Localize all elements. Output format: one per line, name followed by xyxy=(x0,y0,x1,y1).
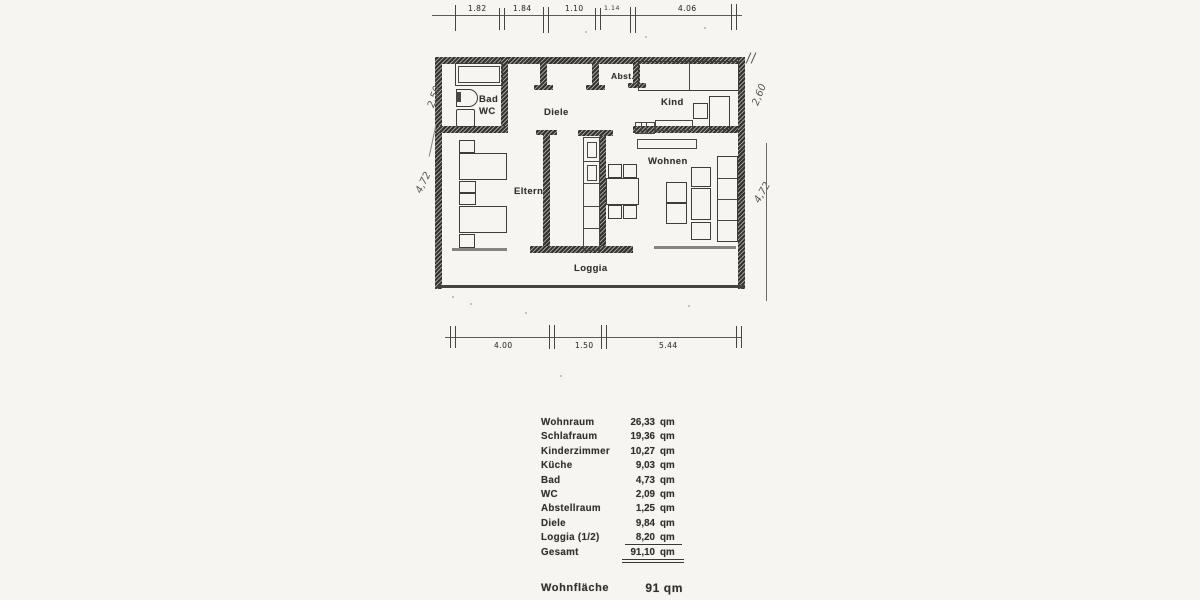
wall-cap xyxy=(536,130,557,135)
kitchen-stove xyxy=(587,165,597,181)
wall-eltern-diele xyxy=(543,132,550,253)
table-row-unit: qm xyxy=(660,519,675,529)
dim-tick xyxy=(635,7,636,33)
scanned-floorplan-sheet: 1.82 1.84 1.10 1.14 4.06 xyxy=(0,0,1200,600)
table-row-label: Bad xyxy=(541,476,560,486)
scan-speck xyxy=(525,312,527,314)
dim-tick xyxy=(736,4,737,30)
coffee-table xyxy=(691,222,711,240)
dim-tick xyxy=(601,325,602,349)
wall-loggia-middle xyxy=(530,246,633,253)
dim-tick xyxy=(455,5,456,31)
kitchen-counter xyxy=(583,137,600,251)
dim-tick xyxy=(543,7,544,33)
shelf xyxy=(655,120,693,131)
wardrobe xyxy=(638,61,739,91)
wall-cap xyxy=(578,130,613,136)
dim-label: 1.14 xyxy=(604,6,620,12)
loggia-parapet xyxy=(437,285,744,288)
table-row-unit: qm xyxy=(660,447,675,457)
room-label-wohnen: Wohnen xyxy=(648,156,688,167)
table-row-unit: qm xyxy=(660,548,675,558)
table-row-value: 8,20 xyxy=(583,533,655,543)
chair xyxy=(608,205,622,219)
scan-speck xyxy=(470,303,472,305)
dim-tick xyxy=(504,8,505,30)
scan-speck xyxy=(688,305,690,307)
table-row-unit: qm xyxy=(660,490,675,500)
total-rule-2 xyxy=(622,562,684,563)
chair xyxy=(623,205,637,219)
shelf-small xyxy=(635,122,655,134)
table-row-value: 9,03 xyxy=(583,461,655,471)
armchair xyxy=(666,182,687,203)
table-row-value: 26,33 xyxy=(583,418,655,428)
table-row-value: 1,25 xyxy=(583,504,655,514)
counter-divider xyxy=(584,161,599,162)
counter-divider xyxy=(584,206,599,207)
table-row-label: Küche xyxy=(541,461,572,471)
washbasin-tap xyxy=(456,92,461,102)
dim-tick xyxy=(630,7,631,33)
scan-speck xyxy=(585,31,587,33)
sofa-divider xyxy=(718,220,737,221)
coffee-table xyxy=(691,167,711,187)
summary-value: 91 qm xyxy=(597,582,683,594)
nightstand xyxy=(459,234,475,248)
scan-speck xyxy=(645,36,647,38)
table-row-value: 4,73 xyxy=(583,476,655,486)
dining-table xyxy=(606,178,639,205)
subtotal-rule xyxy=(625,544,682,545)
nightstand xyxy=(459,192,476,205)
table-row-unit: qm xyxy=(660,533,675,543)
wall-right xyxy=(738,57,745,289)
dim-label: 4.00 xyxy=(494,342,513,350)
room-label-diele: Diele xyxy=(544,107,569,118)
sofa-divider xyxy=(718,178,737,179)
window-wohnen-loggia xyxy=(654,246,736,249)
dim-label: 4.06 xyxy=(678,5,697,13)
table-row-label: Gesamt xyxy=(541,548,579,558)
sofa xyxy=(717,156,738,242)
handwritten-dim-right-upper: 2,60 xyxy=(751,83,769,107)
table-row-label: Diele xyxy=(541,519,566,529)
window-eltern-loggia xyxy=(452,248,507,251)
bathtub-inner xyxy=(458,66,500,83)
shelf-divider xyxy=(641,123,642,133)
bathtub xyxy=(455,63,503,86)
table-row-unit: qm xyxy=(660,476,675,486)
handwritten-dim-left-lower: 4,72 xyxy=(415,171,434,195)
counter-divider xyxy=(584,183,599,184)
table-row-unit: qm xyxy=(660,461,675,471)
sideboard xyxy=(637,139,697,149)
chair xyxy=(608,164,622,178)
wall-kueche-right xyxy=(599,132,606,253)
dim-tick xyxy=(595,8,596,30)
table-row-label: WC xyxy=(541,490,558,500)
dim-tick xyxy=(554,325,555,349)
shelf-divider xyxy=(646,123,647,133)
scan-speck xyxy=(560,375,562,377)
table-row-value: 19,36 xyxy=(583,432,655,442)
room-label-loggia: Loggia xyxy=(574,263,608,274)
kitchen-sink xyxy=(587,142,597,158)
room-label-eltern: Eltern xyxy=(514,186,543,197)
dim-tick xyxy=(600,8,601,30)
dim-label: 1.50 xyxy=(575,342,594,350)
entry-wall-stub xyxy=(540,62,547,86)
dim-slash xyxy=(751,52,757,63)
wall-bad-bottom xyxy=(435,126,508,133)
dim-tick xyxy=(549,325,550,349)
table-row-value: 91,10 xyxy=(583,548,655,558)
right-reference-line xyxy=(766,143,767,301)
entry-wall-foot xyxy=(534,85,553,90)
handwritten-dim-right-lower: 4,72 xyxy=(753,181,773,205)
dim-label: 1.82 xyxy=(468,5,487,13)
dim-tick xyxy=(736,326,737,348)
bed-parent-1 xyxy=(459,153,507,180)
toilet xyxy=(456,109,475,127)
bed-parent-2 xyxy=(459,206,507,233)
dim-label: 5.44 xyxy=(659,342,678,350)
counter-divider xyxy=(584,228,599,229)
table-row-unit: qm xyxy=(660,432,675,442)
dim-tick xyxy=(548,7,549,33)
nightstand xyxy=(459,140,475,153)
desk xyxy=(693,103,708,119)
dim-tick xyxy=(499,8,500,30)
bed-child xyxy=(709,96,730,130)
room-label-abst: Abst. xyxy=(611,71,634,81)
room-label-bad: Bad xyxy=(479,94,498,105)
dim-tick xyxy=(455,326,456,348)
scan-speck xyxy=(704,27,706,29)
coffee-table xyxy=(691,188,711,220)
table-row-value: 10,27 xyxy=(583,447,655,457)
room-label-wc: WC xyxy=(479,106,496,117)
table-row-unit: qm xyxy=(660,504,675,514)
table-row-unit: qm xyxy=(660,418,675,428)
armchair xyxy=(666,203,687,224)
room-label-kind: Kind xyxy=(661,97,684,108)
top-dim-rule xyxy=(432,15,742,16)
bottom-dim-rule xyxy=(445,337,742,338)
dim-tick xyxy=(450,326,451,348)
dim-tick xyxy=(741,326,742,348)
chair xyxy=(623,164,637,178)
wardrobe-divider xyxy=(689,62,690,90)
entry-wall-stub xyxy=(592,62,599,86)
table-row-value: 2,09 xyxy=(583,490,655,500)
entry-wall-foot xyxy=(586,85,605,90)
dim-label: 1.84 xyxy=(513,5,532,13)
dim-label: 1.10 xyxy=(565,5,584,13)
scan-speck xyxy=(452,296,454,298)
dim-tick xyxy=(731,4,732,30)
total-rule-1 xyxy=(622,559,684,560)
table-row-value: 9,84 xyxy=(583,519,655,529)
dim-tick xyxy=(606,325,607,349)
sofa-divider xyxy=(718,199,737,200)
